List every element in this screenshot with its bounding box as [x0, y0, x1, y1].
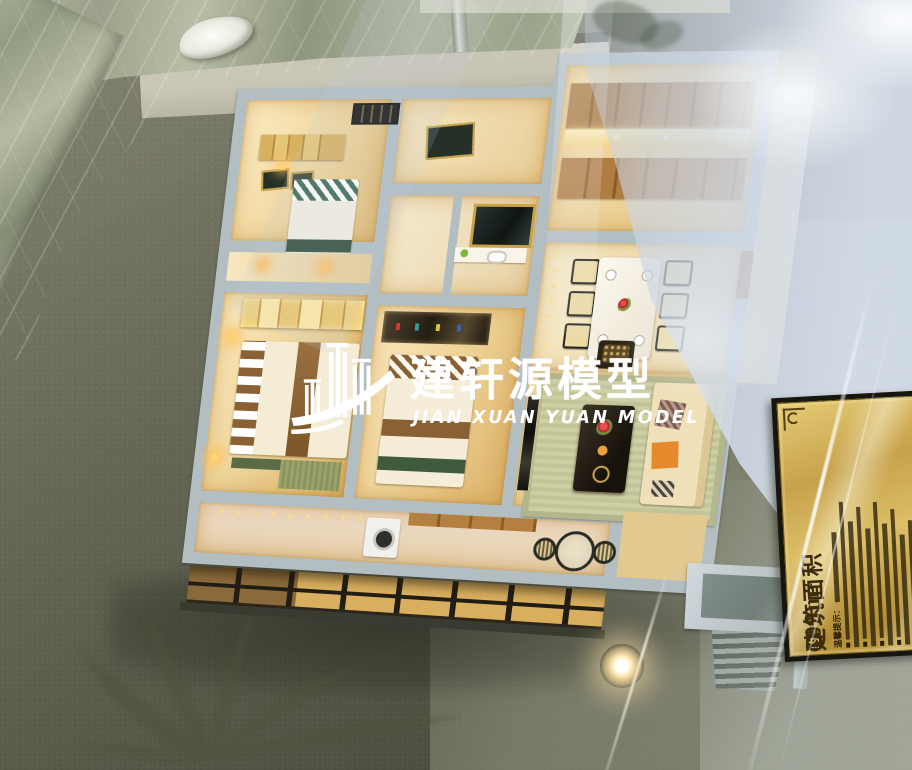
light-glare — [600, 644, 644, 688]
buildings-logo-icon — [288, 328, 404, 442]
watermark-subtitle: JIAN XUAN YUAN MODEL — [410, 408, 700, 428]
bed-throw — [377, 456, 466, 474]
ceiling-lights-row — [213, 506, 370, 524]
plaque-fine-print: 温馨提示： — [825, 400, 912, 648]
palm-leaf-shadow — [50, 550, 550, 770]
striped-pillow — [651, 480, 675, 497]
striped-pillows — [229, 341, 266, 455]
watermark-text: 建轩源模型 JIAN XUAN YUAN MODEL — [410, 356, 700, 428]
ceiling-reflection-strip — [420, 0, 730, 13]
plaque-face: 建筑面积 约 109m² 温馨提示： — [776, 395, 912, 656]
orange-pillow — [651, 441, 678, 469]
rug — [278, 460, 342, 492]
area-plaque: 建筑面积 约 109m² 温馨提示： — [771, 390, 912, 662]
watermark-title: 建轩源模型 — [410, 356, 700, 403]
cloud-reflection — [780, 0, 912, 90]
place-setting — [605, 269, 617, 280]
watermark: 建轩源模型 JIAN XUAN YUAN MODEL — [288, 328, 648, 448]
mirror — [469, 204, 537, 248]
balcony-table — [553, 530, 598, 572]
tips-heading: 温馨提示： — [835, 605, 842, 648]
bathroom — [379, 195, 539, 296]
gold-tray — [591, 465, 610, 483]
bedside-lamp-glow — [228, 333, 237, 342]
plaque-rotated-content: 建筑面积 约 109m² 温馨提示： — [785, 400, 912, 653]
sink — [486, 251, 507, 264]
display-case-photo: 建筑面积 约 109m² 温馨提示： — [0, 0, 912, 770]
partition-wall — [442, 196, 463, 295]
bedside-lamp-glow — [210, 453, 219, 462]
